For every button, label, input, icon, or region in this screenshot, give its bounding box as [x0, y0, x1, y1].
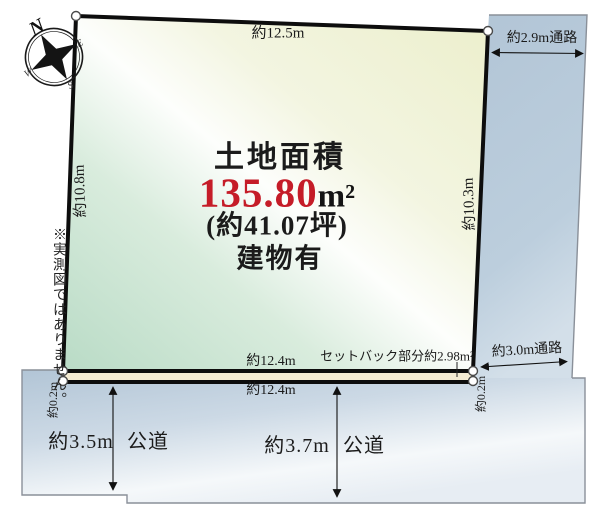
dim-bottom-inner: 約12.4m [246, 355, 295, 369]
land-area-unit: m² [318, 181, 355, 214]
passage-right-area [474, 15, 587, 378]
road-left-type-label: 公道 [127, 432, 169, 452]
setback-area-label: セットバック部分約2.98m² [320, 350, 474, 363]
dim-left-height: 約10.8m [73, 164, 90, 217]
dim-bottom-outer: 約12.4m [246, 384, 295, 398]
building-status: 建物有 [237, 246, 324, 273]
setback-strip [63, 373, 473, 380]
dim-top-width: 約12.5m [252, 27, 305, 42]
dim-setback-right: 約0.2m [475, 376, 487, 412]
compass-north-label: N [24, 14, 50, 42]
dim-right-height: 約10.3m [462, 177, 479, 230]
road-left-width-label: 約3.5m [48, 432, 114, 452]
land-area-title: 土地面積 [214, 143, 346, 173]
land-area-tsubo: (約41.07坪) [206, 213, 348, 240]
road-right-type-label: 公道 [343, 436, 385, 456]
disclaimer-note: ※実測図ではありません。 [48, 227, 68, 407]
road-right-width-label: 約3.7m [264, 436, 330, 456]
land-area-value-line: 135.80m² [199, 173, 355, 214]
lot-plan-diagram: N E S W 約12.5m 約10.8m 約10.3m 約12.4m 約12.… [0, 0, 600, 518]
land-area-number: 135.80 [199, 173, 318, 214]
passage-top-label: 約2.9m通路 [507, 32, 577, 46]
